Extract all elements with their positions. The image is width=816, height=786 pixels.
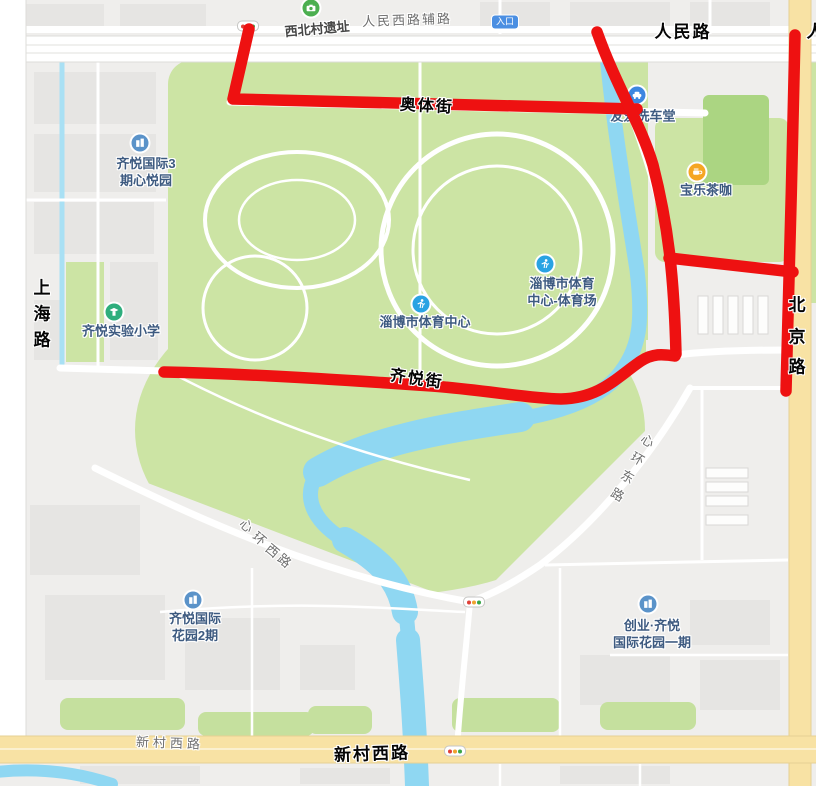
annotation-qiyue-jie: 齐悦街 [389,361,446,392]
annotation-renmin-lu-partial: 人 [807,18,816,43]
annotation-renmin-lu: 人民路 [655,18,712,43]
annotation-xincun-xilu: 新村西路 [334,738,411,766]
annotation-beijing-lu: 京 [789,323,806,348]
annotation-shanghai-lu: 上 [34,274,51,299]
annotation-shanghai-lu: 路 [34,326,51,351]
annotation-shanghai-lu: 海 [34,300,51,325]
annotation-beijing-lu: 北 [789,291,806,316]
annotation-beijing-lu: 路 [789,353,806,378]
map-canvas[interactable]: 人民西路辅路 西北村遗址 入口 友爱洗车堂 宝乐茶咖 齐悦国际3 期心悦园 [0,0,816,786]
annotation-aoti-jie: 奥体街 [399,91,454,118]
